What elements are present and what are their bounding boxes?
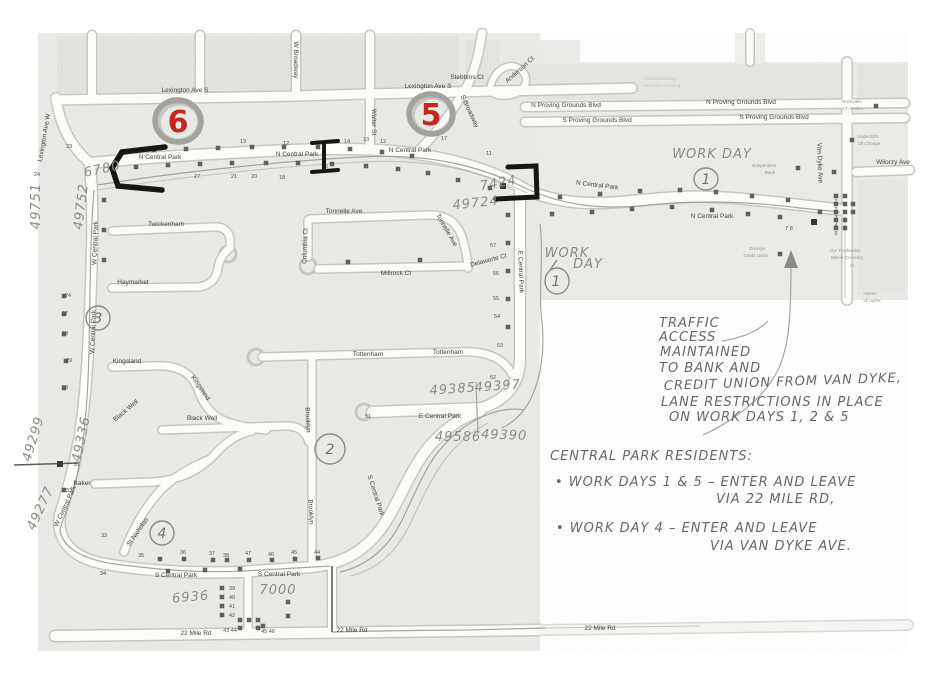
house-marker: [506, 241, 511, 246]
poi-label: Bank: [765, 170, 776, 175]
traffic-note-line: MAINTAINED: [660, 345, 751, 360]
house-marker: [247, 618, 252, 623]
street-label: Lexington Ave S: [162, 87, 210, 94]
work-day-number: 1: [552, 274, 561, 290]
street-label: Wilorzy Ave: [876, 159, 910, 166]
house-marker: [396, 167, 401, 172]
house-marker: [506, 269, 511, 274]
poi-label: Independent: [751, 163, 777, 168]
zone-number-2: 2: [326, 442, 335, 458]
poi-label: Oil Change: [858, 141, 881, 146]
street-label: W Broadway: [292, 42, 299, 80]
house-marker: [558, 195, 563, 200]
house-marker: [598, 192, 603, 197]
house-marker: [714, 190, 719, 195]
zone-number-4: 4: [158, 526, 167, 542]
poi-label: Manor Crossing: [831, 255, 863, 260]
poi-label: of Lights: [863, 298, 881, 303]
house-marker: [710, 208, 715, 213]
house-marker: [851, 202, 856, 207]
house-marker: [778, 252, 783, 257]
lot-number: 56: [493, 271, 499, 277]
lot-number: 34: [100, 571, 106, 577]
lot-number: 33: [101, 533, 107, 539]
residents-note-line: VIA VAN DYKE AVE.: [710, 539, 852, 554]
construction-traffic-map: Lexington Ave SLexington Ave SLexington …: [0, 0, 950, 678]
house-marker: [158, 557, 163, 562]
street-label: Tonnelle Ave: [326, 208, 363, 215]
street-label: S Central Park: [155, 572, 198, 579]
lot-number: 28: [62, 331, 68, 337]
zone-number-6: 6: [168, 105, 189, 140]
house-marker: [330, 162, 335, 167]
street-label: 22 Mile Rd: [336, 627, 367, 634]
work-day-label: DAY: [573, 257, 603, 272]
house-marker: [316, 145, 321, 150]
house-marker: [211, 558, 216, 563]
lot-number: 57: [490, 243, 496, 249]
house-marker: [134, 165, 139, 170]
lot-number: 41: [229, 604, 235, 610]
house-marker: [220, 613, 225, 618]
street-label: N Central Park: [389, 147, 432, 154]
street-label: 22 Mile Rd: [584, 625, 615, 632]
street-label: N Central Park: [276, 151, 319, 158]
street-label: Millrock Ct: [381, 270, 412, 277]
lot-number: 12: [283, 141, 289, 147]
residents-note-line: • WORK DAY 4 – ENTER AND LEAVE: [556, 521, 817, 536]
address-annotation: 49586: [435, 430, 481, 445]
house-marker: [364, 164, 369, 169]
road: [55, 630, 540, 636]
street-label: Tottenham: [353, 351, 383, 358]
house-marker: [264, 161, 269, 166]
house-marker: [796, 166, 801, 171]
lot-number: 38: [223, 553, 229, 559]
street-label: Van Dyke Ave: [815, 143, 823, 184]
lot-number: 46: [268, 552, 274, 558]
house-marker: [316, 556, 321, 561]
lot-number: 20: [251, 174, 257, 180]
lot-number: 37: [209, 551, 215, 557]
house-marker: [506, 325, 511, 330]
house-marker: [590, 210, 595, 215]
lot-number: 3: [834, 215, 837, 221]
residents-note-line: CENTRAL PARK RESIDENTS:: [550, 449, 753, 464]
lot-number: 29: [66, 358, 72, 364]
house-marker: [851, 210, 856, 215]
house-marker: [296, 161, 301, 166]
house-marker: [346, 260, 351, 265]
street-label: Tottenham: [433, 349, 463, 356]
lot-number: 30: [62, 385, 68, 391]
house-marker: [678, 188, 683, 193]
house-marker: [230, 161, 235, 166]
street-label: Baker: [74, 480, 92, 487]
street-label: N Central Park: [691, 213, 734, 220]
street-label: N Proving Grounds Blvd: [531, 102, 601, 109]
road: [446, 90, 492, 94]
house-marker: [270, 558, 275, 563]
lot-number: 54: [494, 314, 500, 320]
lot-number: 45: [291, 550, 297, 556]
traffic-note-line: LANE RESTRICTIONS IN PLACE: [661, 395, 884, 410]
road: [318, 266, 468, 269]
poi-label: Uncle Ed's: [857, 134, 879, 139]
house-marker: [843, 202, 848, 207]
street-label: N Proving Grounds Blvd: [706, 99, 776, 106]
house-marker: [843, 210, 848, 215]
house-marker: [750, 194, 755, 199]
street-label: Brooklyn: [307, 499, 315, 525]
poi-label: Rockvalle: [842, 99, 862, 104]
poi-label: Genisys: [749, 246, 766, 251]
house-marker: [220, 586, 225, 591]
house-marker: [184, 147, 189, 152]
house-marker: [250, 145, 255, 150]
house-marker: [57, 461, 63, 467]
address-annotation: 49751: [29, 183, 44, 229]
poi-label: Credit Union: [743, 253, 769, 258]
poi-label: Packard Proving: [643, 76, 677, 81]
lot-number: 35: [138, 553, 144, 559]
house-marker: [426, 171, 431, 176]
scanned-traffic-plan-page: Lexington Ave SLexington Ave SLexington …: [0, 0, 950, 678]
lot-number: 40: [229, 595, 235, 601]
house-marker: [456, 178, 461, 183]
lot-number: 27: [194, 174, 200, 180]
lot-number: 11: [486, 151, 492, 157]
lot-number: 13: [240, 139, 246, 145]
lot-number: 5: [834, 231, 837, 237]
traffic-note-line: ACCESS: [658, 330, 716, 345]
house-marker: [198, 162, 203, 167]
lot-number: 1: [834, 199, 837, 205]
lot-number: 4: [834, 223, 837, 229]
lot-number: 53: [497, 343, 503, 349]
lot-number: 2: [834, 207, 837, 213]
house-marker: [293, 557, 298, 562]
street-label: Columbia Ct: [301, 228, 309, 264]
lot-number: 7 8: [785, 226, 793, 232]
house-marker: [874, 104, 879, 109]
house-marker: [670, 205, 675, 210]
house-marker: [786, 198, 791, 203]
address-annotation: 49390: [481, 427, 528, 444]
house-marker: [834, 194, 839, 199]
work-day-label: WORK DAY: [672, 147, 752, 162]
house-marker: [638, 189, 643, 194]
house-marker: [247, 558, 252, 563]
house-marker: [630, 207, 635, 212]
house-marker: [410, 154, 415, 159]
poi-label: Ch Prahm: [843, 106, 864, 111]
lot-number: 24: [65, 293, 71, 299]
house-marker: [102, 228, 107, 233]
street-label: S Central Park: [258, 571, 301, 578]
lot-number: 43 44: [223, 628, 237, 634]
street-label: E Central Park: [419, 413, 462, 420]
lot-number: 55: [493, 296, 499, 302]
residents-note-line: VIA 22 MILE RD,: [716, 492, 835, 507]
street-label: S Proving Grounds Blvd: [562, 117, 632, 124]
house-marker: [843, 194, 848, 199]
house-marker: [102, 258, 107, 263]
house-marker: [256, 618, 261, 623]
poi-label: Our Fredericka: [830, 248, 861, 253]
house-marker: [506, 297, 511, 302]
house-marker: [102, 198, 107, 203]
street-label: Kingsland: [113, 358, 142, 365]
traffic-note-line: TRAFFIC: [659, 316, 720, 331]
lot-number: 17: [441, 136, 447, 142]
lot-number: 21: [231, 174, 237, 180]
street-label: Black Well: [187, 415, 218, 422]
house-marker: [348, 147, 353, 152]
street-label: N Central Park: [139, 154, 182, 161]
house-marker: [203, 568, 208, 573]
lot-number: 27: [62, 311, 68, 317]
lot-number: 51: [365, 414, 371, 420]
house-marker: [238, 618, 243, 623]
house-marker: [216, 146, 221, 151]
traffic-note-line: ON WORK DAYS 1, 2 & 5: [669, 410, 850, 425]
house-marker: [811, 219, 817, 225]
house-marker: [238, 626, 243, 631]
lot-number: 45 46: [261, 629, 275, 635]
lot-number: 18: [279, 175, 285, 181]
house-marker: [418, 258, 423, 263]
zone-number-5: 5: [421, 98, 442, 133]
street-label: Lexington Ave S: [405, 83, 453, 90]
street-label: Stebbins Ct: [450, 74, 484, 81]
house-marker: [380, 150, 385, 155]
house-marker: [843, 218, 848, 223]
house-marker: [746, 212, 751, 217]
lot-number: 44: [314, 550, 320, 556]
house-marker: [286, 614, 291, 619]
address-annotation: 7000: [259, 583, 296, 598]
house-marker: [818, 210, 823, 215]
residents-note-line: • WORK DAYS 1 & 5 – ENTER AND LEAVE: [555, 475, 856, 490]
poi-label: Haven: [863, 291, 877, 296]
house-marker: [843, 226, 848, 231]
house-marker: [220, 595, 225, 600]
house-marker: [256, 626, 261, 631]
house-marker: [182, 557, 187, 562]
house-marker: [832, 170, 837, 175]
poi-label: Grounds Crossing: [644, 83, 681, 88]
house-marker: [550, 212, 555, 217]
traffic-note-line: TO BANK AND: [659, 361, 761, 376]
lot-number: 14: [344, 139, 350, 145]
street-label: Twickenham: [148, 221, 184, 228]
street-label: Brooklyn: [304, 407, 312, 433]
street-label: Walter St: [370, 109, 377, 136]
lot-number: 24: [34, 172, 40, 178]
street-label: Haymarket: [117, 279, 149, 286]
lot-number: 47: [245, 551, 251, 557]
house-marker: [238, 567, 243, 572]
work-day-number: 1: [702, 172, 711, 188]
lot-number: 12: [380, 139, 386, 145]
house-marker: [850, 138, 855, 143]
house-marker: [778, 215, 783, 220]
lot-number: 13: [363, 137, 369, 143]
house-marker: [166, 163, 171, 168]
house-marker: [506, 213, 511, 218]
street-label: 22 Mile Rd: [180, 630, 211, 637]
lot-number: 36: [180, 550, 186, 556]
poi-label: 11: [850, 263, 855, 268]
house-marker: [220, 604, 225, 609]
road: [856, 170, 910, 172]
street-label: S Proving Grounds Blvd: [739, 114, 809, 121]
lot-number: 42: [229, 613, 235, 619]
lot-number: 39: [229, 586, 235, 592]
house-marker: [261, 624, 266, 629]
house-marker: [286, 600, 291, 605]
lot-number: 23: [66, 144, 72, 150]
lot-number: 32: [66, 488, 72, 494]
zone-number-3: 3: [94, 311, 103, 327]
